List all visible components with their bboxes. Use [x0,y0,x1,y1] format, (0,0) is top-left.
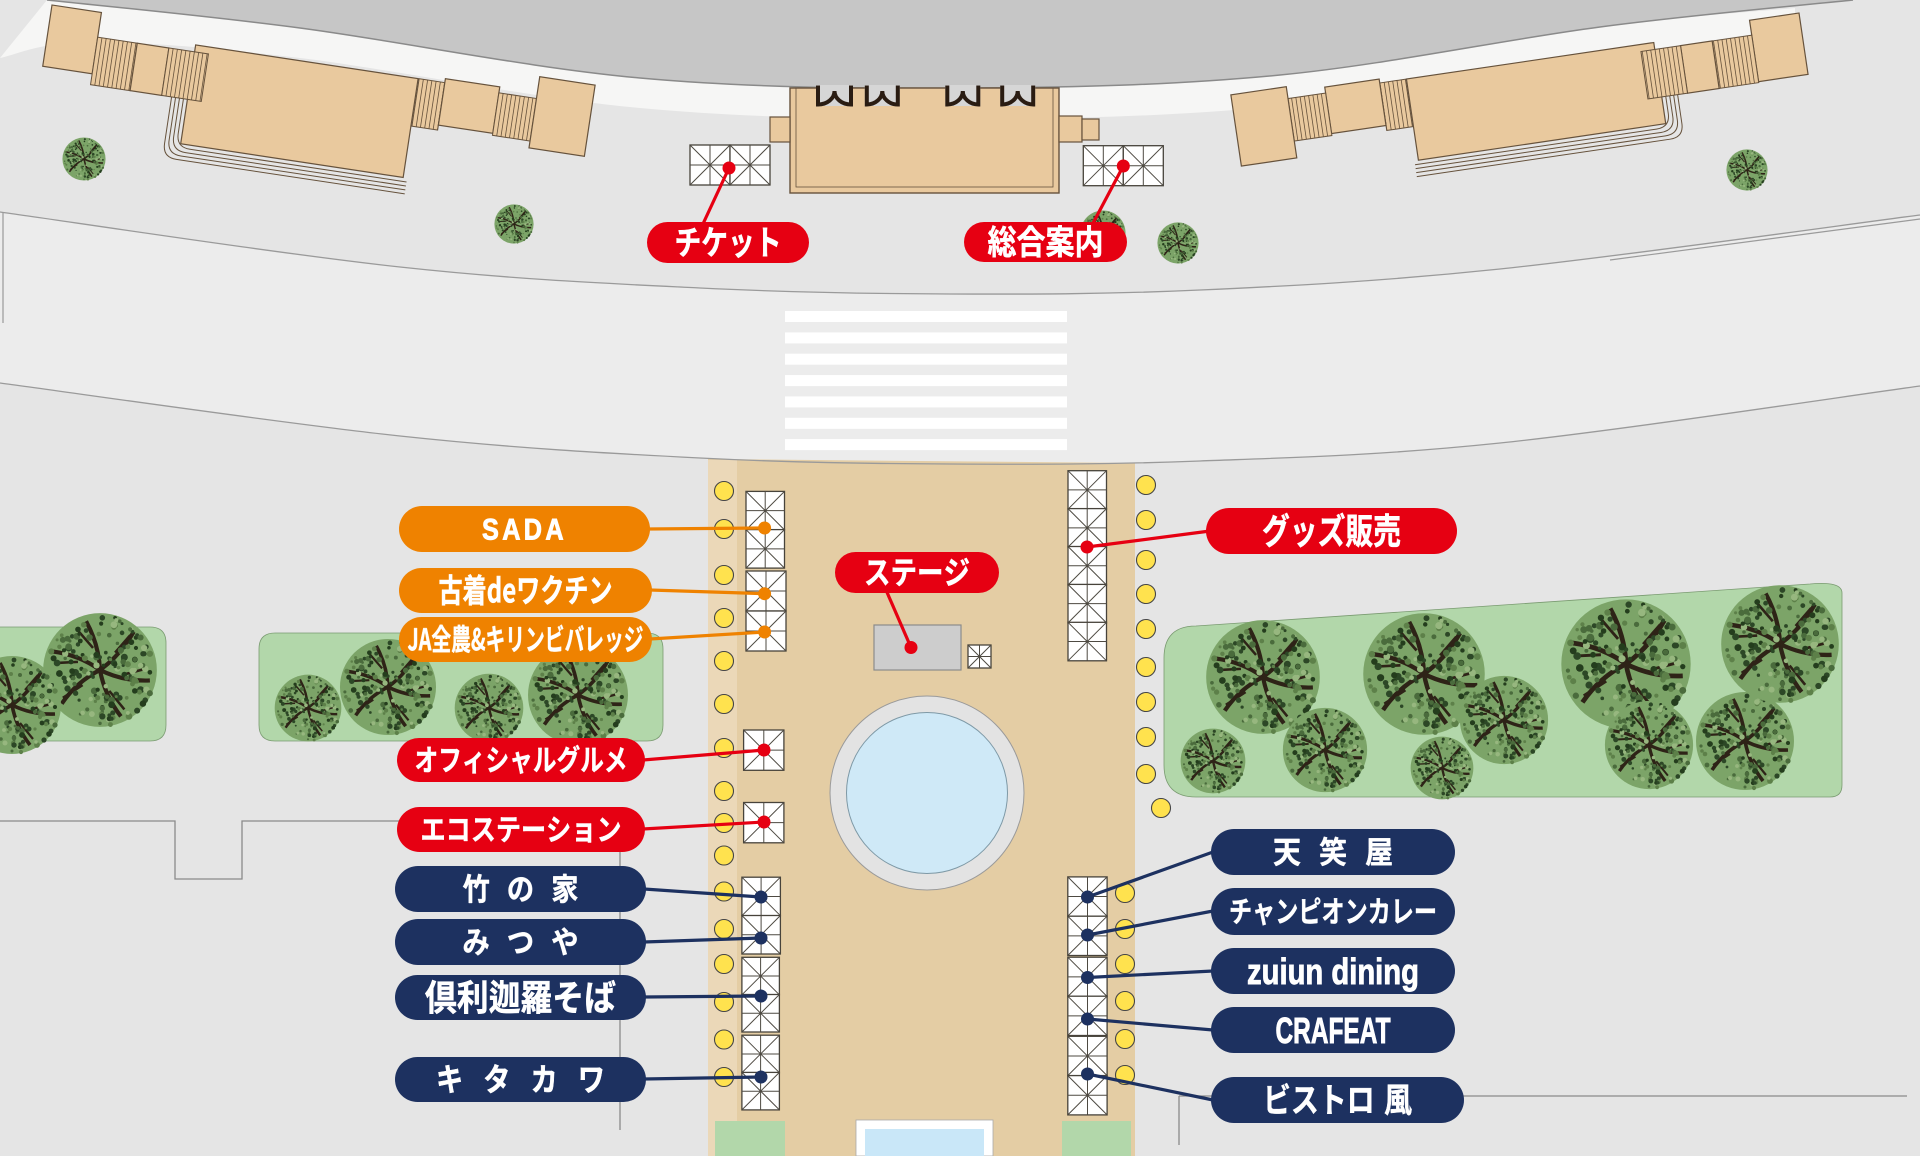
svg-text:CRAFEAT: CRAFEAT [1276,1010,1391,1051]
svg-text:zuiun dining: zuiun dining [1247,951,1419,992]
svg-text:SADA: SADA [482,514,567,547]
